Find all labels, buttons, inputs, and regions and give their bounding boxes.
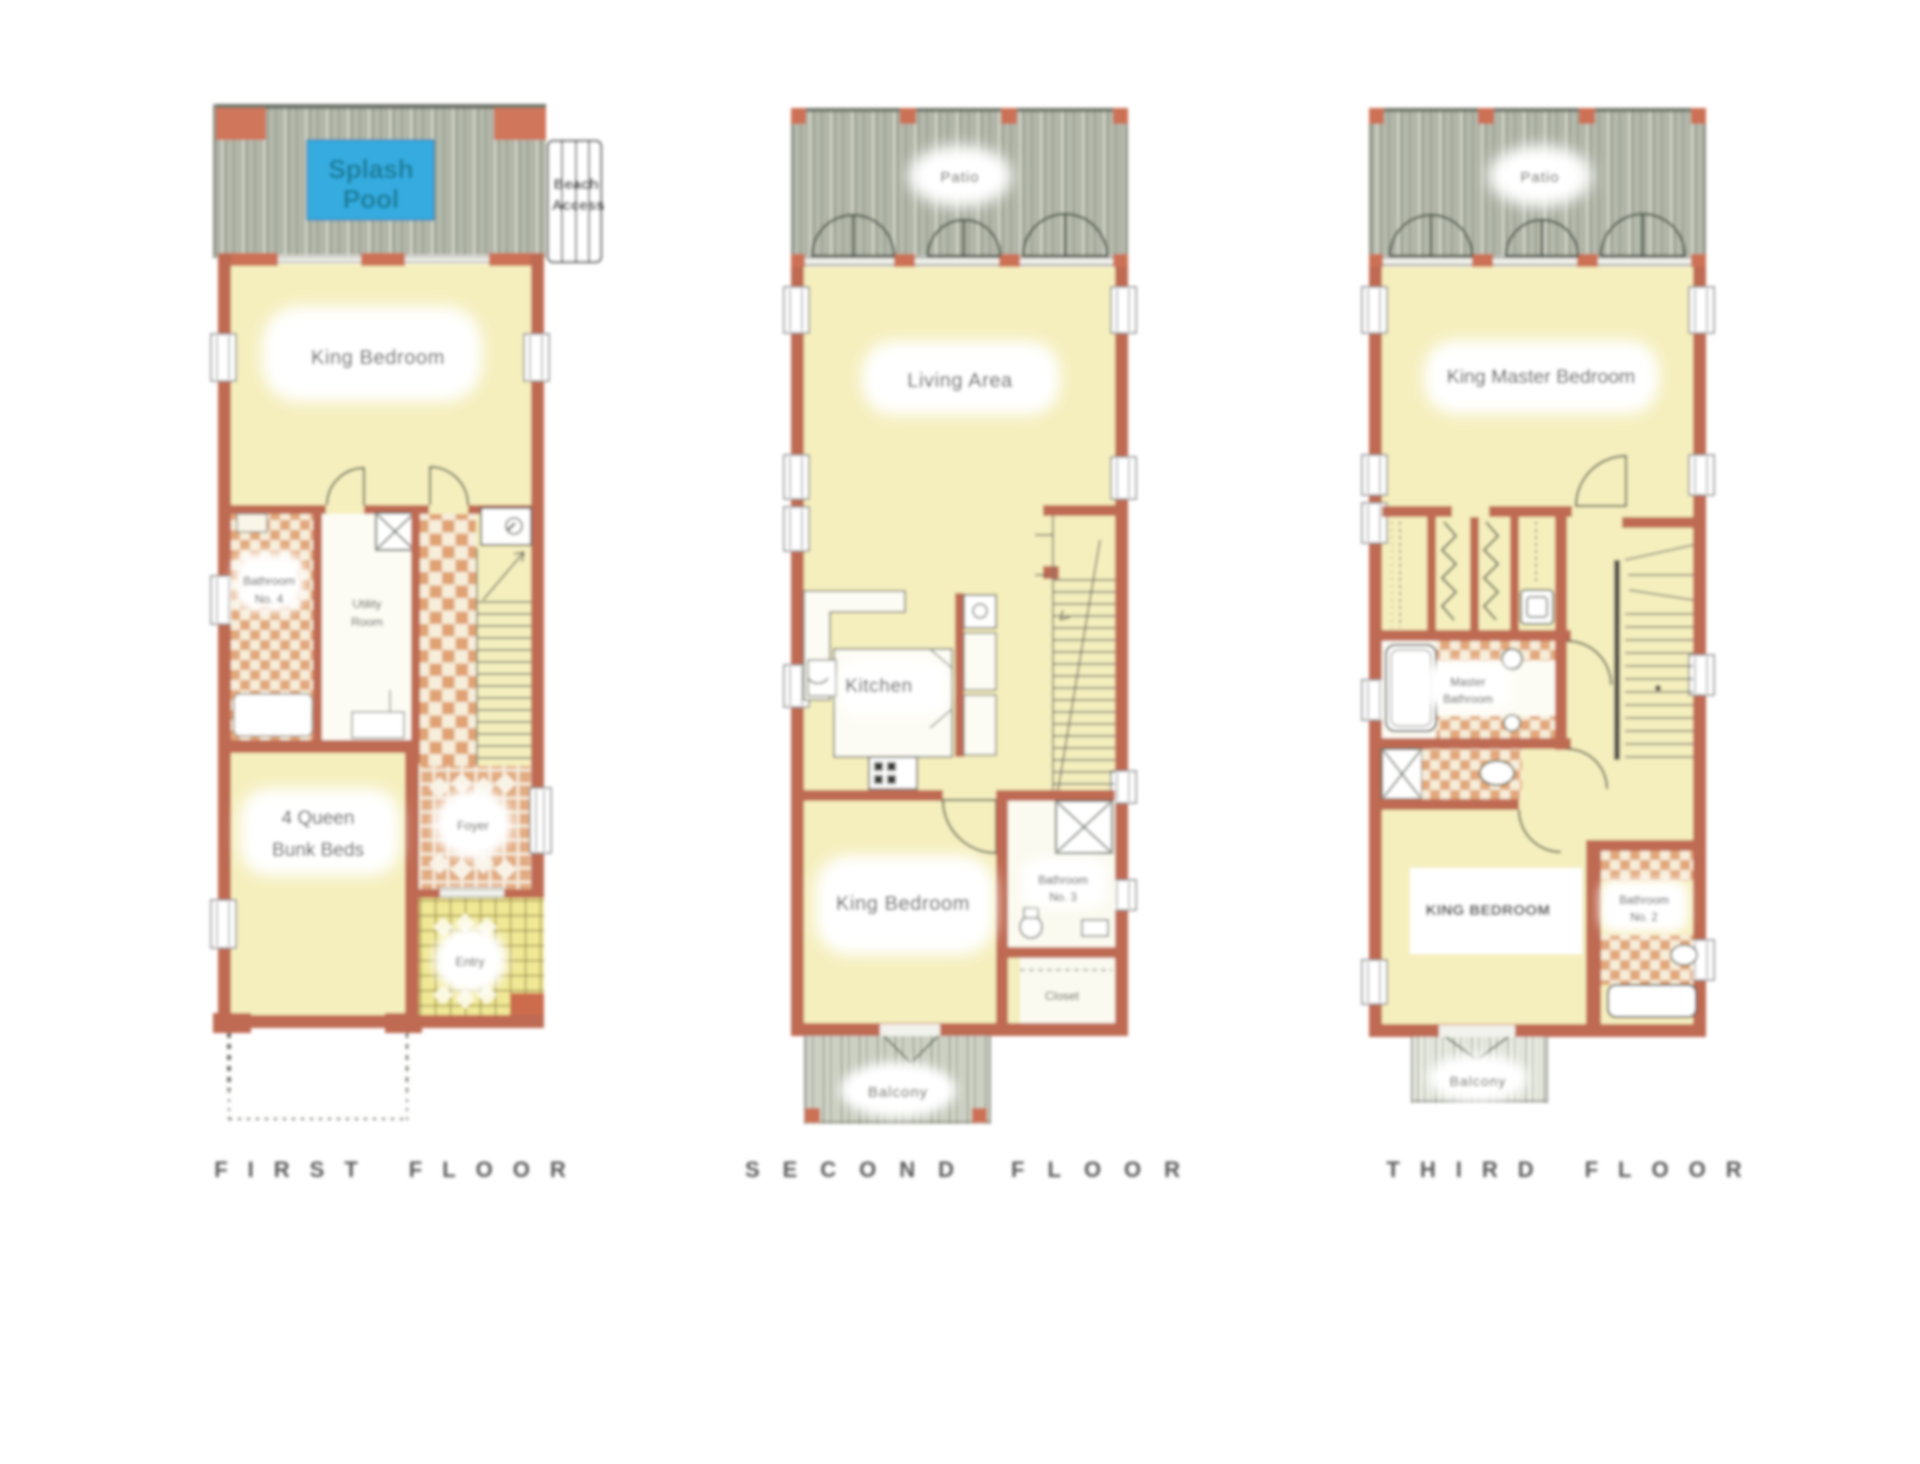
svg-text:No. 2: No. 2: [1630, 912, 1658, 924]
svg-text:No. 3: No. 3: [1049, 892, 1077, 904]
svg-text:SECOND FLOOR: SECOND FLOOR: [745, 1157, 1203, 1182]
svg-text:King Bedroom: King Bedroom: [311, 347, 445, 369]
svg-text:No. 4: No. 4: [255, 592, 284, 606]
svg-text:THIRD FLOOR: THIRD FLOOR: [1386, 1157, 1761, 1182]
svg-text:Kitchen: Kitchen: [845, 676, 913, 697]
svg-text:Access: Access: [552, 197, 605, 214]
svg-text:Pool: Pool: [343, 184, 399, 214]
svg-text:Bathroom: Bathroom: [1443, 694, 1493, 706]
svg-text:Patio: Patio: [940, 169, 979, 186]
svg-text:Foyer: Foyer: [457, 819, 489, 833]
svg-text:4 Queen: 4 Queen: [282, 808, 355, 829]
svg-text:Splash: Splash: [328, 154, 413, 184]
svg-text:Bathroom: Bathroom: [243, 574, 295, 588]
svg-text:KING BEDROOM: KING BEDROOM: [1426, 902, 1551, 919]
svg-text:Balcony: Balcony: [1450, 1073, 1507, 1089]
svg-text:King Master Bedroom: King Master Bedroom: [1447, 366, 1636, 388]
svg-text:FIRST FLOOR: FIRST FLOOR: [214, 1157, 586, 1182]
svg-text:Room: Room: [351, 615, 383, 629]
svg-text:Beach: Beach: [553, 176, 598, 193]
svg-text:King Bedroom: King Bedroom: [836, 893, 970, 915]
svg-text:Balcony: Balcony: [868, 1084, 928, 1101]
svg-text:Entry: Entry: [455, 955, 485, 969]
svg-text:Bathroom: Bathroom: [1038, 875, 1088, 887]
svg-text:Utility: Utility: [352, 597, 381, 611]
svg-text:Bunk Beds: Bunk Beds: [272, 840, 364, 861]
svg-text:Master: Master: [1450, 677, 1485, 689]
svg-text:Patio: Patio: [1520, 169, 1559, 186]
svg-text:Bathroom: Bathroom: [1619, 895, 1669, 907]
svg-text:Living Area: Living Area: [907, 370, 1013, 392]
svg-text:Closet: Closet: [1045, 989, 1080, 1003]
